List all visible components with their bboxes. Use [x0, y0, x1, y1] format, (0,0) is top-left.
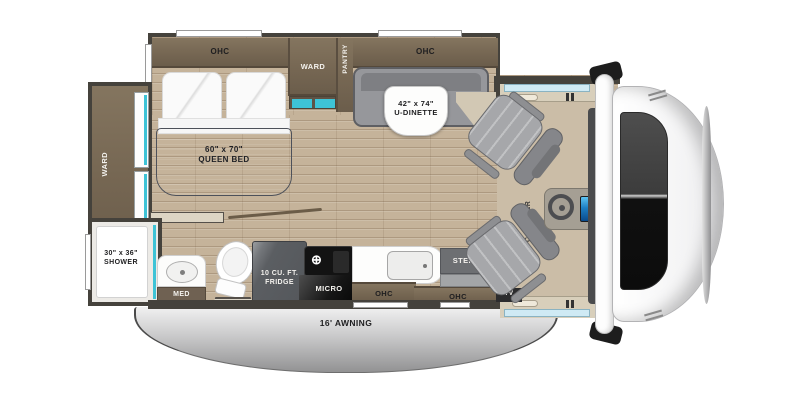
queen-bed: 60" x 70" QUEEN BED	[156, 128, 292, 196]
shower: 30" x 36" SHOWER	[88, 218, 162, 306]
shower-glass	[153, 225, 156, 299]
kitchen-counter	[352, 246, 444, 284]
overhead-cabinet-dinette: OHC	[353, 38, 498, 68]
overhead-cabinet-bedroom: OHC	[152, 38, 288, 68]
dinette-size: 42" x 74"	[398, 99, 434, 108]
wardrobe-top: WARD	[288, 38, 336, 96]
dinette-name: U-DINETTE	[394, 108, 438, 117]
dresser	[289, 96, 336, 109]
stove-burner-icon: ⊕	[311, 252, 322, 268]
window	[85, 234, 91, 290]
stove: ⊕	[304, 246, 354, 277]
window	[378, 30, 462, 37]
window	[176, 30, 262, 37]
ohc-label: OHC	[352, 289, 416, 298]
wardrobe-mirror-door	[134, 92, 149, 168]
ward-left-label: WARD	[100, 152, 109, 177]
windshield	[620, 112, 668, 290]
ohc-label: OHC	[353, 47, 498, 57]
awning: 16' AWNING	[134, 307, 558, 373]
faucet	[180, 270, 185, 275]
fridge-line2: FRIDGE	[265, 279, 294, 286]
overhead-cabinet-kitchen: OHC	[352, 282, 416, 302]
micro-label: MICRO	[299, 284, 359, 293]
ohc-label: OHC	[152, 47, 288, 57]
hood-chrome-trim	[702, 106, 711, 304]
window	[353, 302, 408, 308]
med-label: MED	[158, 291, 205, 300]
window	[440, 302, 470, 308]
dresser-drawer	[315, 99, 335, 108]
fridge-line1: 10 CU. FT.	[261, 270, 298, 277]
dinette-table: 42" x 74" U-DINETTE	[384, 86, 448, 136]
shower-size: 30" x 36"	[104, 250, 138, 257]
rv-floorplan: 16' AWNING OHC WARD PANTRY OHC 42" x 74"…	[0, 0, 800, 408]
faucet	[423, 264, 427, 268]
bed-name: QUEEN BED	[198, 155, 249, 164]
bed-size: 60" x 70"	[205, 145, 243, 154]
pantry-label: PANTRY	[342, 44, 350, 74]
ward-label: WARD	[290, 62, 336, 71]
pantry: PANTRY	[336, 38, 353, 112]
steering-hub	[559, 205, 565, 211]
shower-name: SHOWER	[104, 259, 138, 266]
dresser-drawer	[292, 99, 312, 108]
awning-label: 16' AWNING	[136, 318, 556, 329]
bath-counter	[157, 255, 206, 287]
